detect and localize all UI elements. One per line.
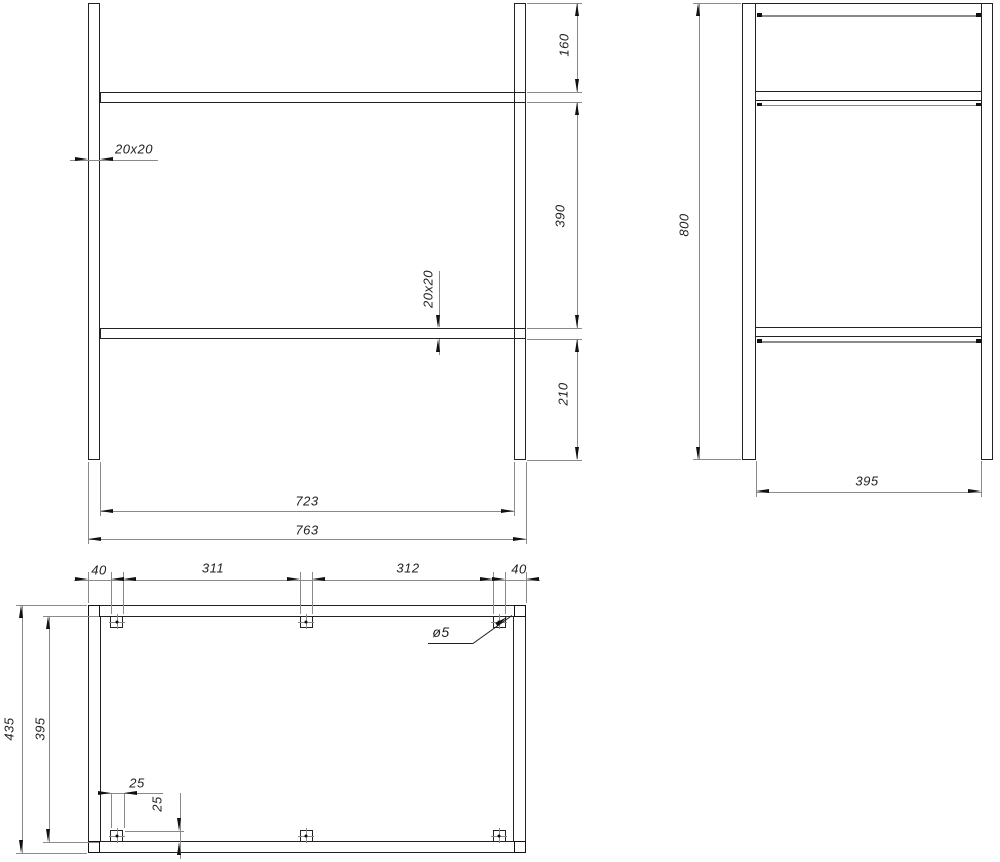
hole-center [305, 620, 308, 623]
dim-label-390: 390 [553, 204, 568, 227]
dim-label-311: 311 [202, 560, 224, 575]
arrowhead [124, 791, 137, 795]
arrowhead [575, 447, 579, 460]
extension-line [527, 460, 582, 461]
dim-label-312: 312 [396, 560, 419, 575]
panel-bracket-mark [757, 339, 763, 343]
panel-bracket-mark [757, 13, 763, 17]
arrowhead [575, 79, 579, 92]
panel-bracket-mark [757, 103, 763, 107]
arrowhead [492, 577, 505, 581]
dim-label-40-right: 40 [511, 561, 526, 576]
arrowhead [312, 577, 325, 581]
extension-line [43, 616, 99, 617]
dim-line-435 [22, 605, 23, 853]
extension-line [88, 462, 89, 544]
arrowhead [480, 577, 493, 581]
side-panel-line-3 [757, 341, 979, 343]
arrowhead [575, 3, 579, 16]
arrowhead [513, 537, 526, 541]
dim-line-top-row [74, 580, 540, 581]
dim-label-210: 210 [556, 382, 571, 405]
dim-label-723: 723 [295, 494, 318, 509]
arrowhead [100, 509, 113, 513]
extension-line [693, 459, 741, 460]
side-rail3-top [756, 327, 981, 328]
dim-line-800 [699, 3, 700, 460]
extension-line [124, 794, 125, 828]
arrowhead [575, 339, 579, 352]
dim-label-40-left: 40 [91, 562, 106, 577]
corner-post [514, 841, 526, 853]
arrowhead [19, 840, 23, 853]
arrowhead [46, 829, 50, 842]
dim-label-395-plan: 395 [33, 717, 48, 740]
leader-landing-line [428, 643, 473, 644]
arrowhead [696, 447, 700, 460]
arrowhead [526, 577, 539, 581]
arrowhead [46, 616, 50, 629]
dim-label-800: 800 [677, 213, 692, 236]
arrowhead [436, 339, 440, 352]
extension-line [111, 794, 112, 828]
arrowhead [19, 605, 23, 618]
arrowhead [123, 577, 136, 581]
dim-label-25-v: 25 [150, 796, 165, 811]
hole-center [115, 620, 118, 623]
extension-line [981, 461, 982, 497]
arrowhead [575, 315, 579, 328]
extension-line [88, 572, 89, 603]
side-top-edge [756, 3, 981, 4]
extension-line [693, 3, 741, 4]
hole-center [498, 834, 501, 837]
arrowhead [100, 157, 113, 161]
arrowhead [88, 537, 101, 541]
extension-line [527, 92, 582, 93]
extension-line [526, 462, 527, 544]
side-left-post [742, 3, 756, 460]
arrowhead [177, 818, 181, 831]
front-middle-rail [100, 328, 526, 339]
dim-label-25-h: 25 [129, 776, 144, 791]
front-top-rail [100, 92, 526, 103]
arrowhead [696, 3, 700, 16]
panel-bracket-mark [976, 103, 982, 107]
side-rail3-bottom [756, 336, 981, 337]
front-right-post [514, 3, 526, 460]
dim-line-763 [88, 539, 526, 540]
extension-line [514, 462, 515, 516]
hole-dia-label: ø5 [432, 624, 449, 640]
side-rail2-bottom [756, 100, 981, 101]
arrowhead [98, 791, 111, 795]
extension-line [505, 572, 506, 614]
extension-line [300, 572, 301, 614]
side-right-post [981, 3, 994, 460]
arrowhead [287, 577, 300, 581]
arrowhead [111, 577, 124, 581]
tube-size-label-v: 20x20 [421, 270, 436, 308]
extension-line [16, 853, 87, 854]
extension-line [125, 831, 184, 832]
arrowhead [501, 509, 514, 513]
arrowhead [177, 842, 181, 855]
panel-bracket-mark [976, 13, 982, 17]
dim-line-395-plan [49, 616, 50, 842]
arrowhead [575, 102, 579, 115]
front-left-post [88, 3, 100, 460]
arrowhead [75, 157, 88, 161]
side-rail2-top [756, 91, 981, 92]
dim-line-210 [577, 339, 578, 459]
dim-label-160: 160 [557, 33, 572, 56]
tube-size-label-h: 20x20 [115, 142, 153, 157]
dim-line-395-side [756, 492, 981, 493]
arrowhead [968, 489, 981, 493]
extension-line [527, 328, 582, 329]
side-panel-line-2 [757, 105, 979, 107]
dim-label-395-side: 395 [855, 474, 878, 489]
hole-center [115, 834, 118, 837]
extension-line [43, 842, 99, 843]
hole-center [305, 834, 308, 837]
arrowhead [436, 315, 440, 328]
side-top-panel-line [757, 15, 979, 17]
dim-label-435: 435 [2, 717, 17, 740]
extension-line [16, 605, 87, 606]
arrowhead [75, 577, 88, 581]
panel-bracket-mark [976, 339, 982, 343]
dim-line-390 [577, 102, 578, 328]
corner-post [514, 605, 526, 617]
dim-label-763: 763 [295, 523, 318, 538]
arrowhead [756, 489, 769, 493]
technical-drawing: 160 390 210 20x20 20x20 723 763 [0, 0, 1000, 862]
dim-line-723 [100, 511, 514, 512]
